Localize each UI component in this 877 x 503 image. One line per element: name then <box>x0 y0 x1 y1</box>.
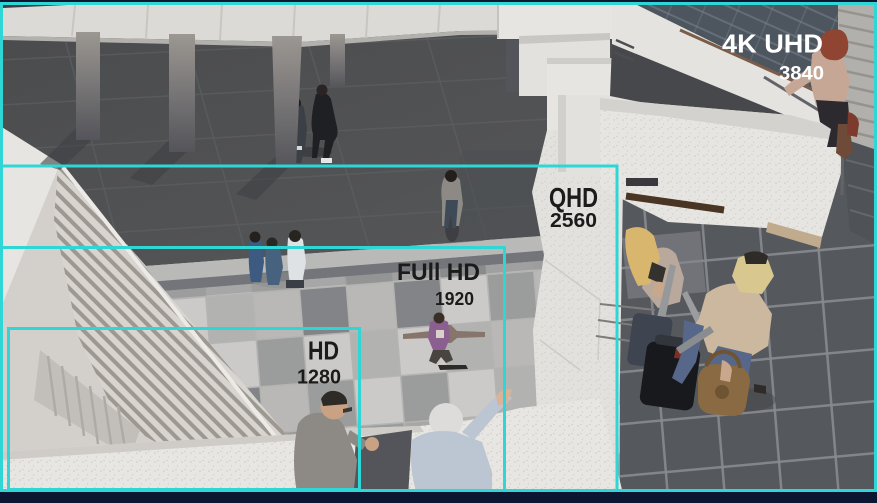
svg-text:3840: 3840 <box>779 64 824 85</box>
svg-text:2560: 2560 <box>550 210 597 232</box>
svg-text:FUll HD: FUll HD <box>397 259 480 286</box>
svg-text:QHD: QHD <box>549 182 598 213</box>
svg-text:HD: HD <box>308 336 339 366</box>
svg-text:1280: 1280 <box>297 367 341 389</box>
svg-text:1920: 1920 <box>435 289 474 309</box>
svg-text:4K UHD: 4K UHD <box>722 29 823 59</box>
